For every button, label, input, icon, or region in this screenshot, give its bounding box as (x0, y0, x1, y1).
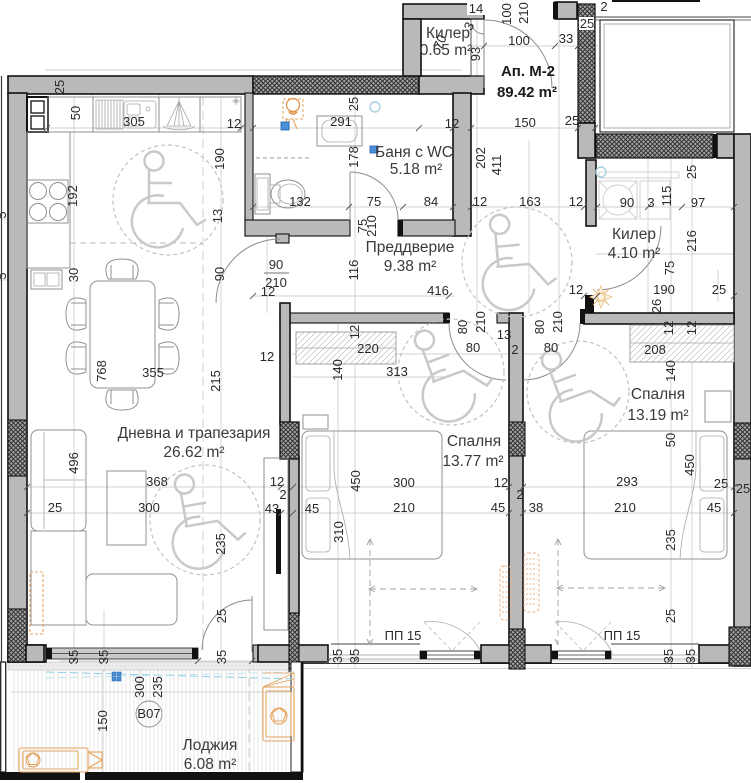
svg-text:12: 12 (261, 284, 275, 299)
svg-text:215: 215 (208, 370, 223, 392)
svg-text:313: 313 (386, 364, 408, 379)
svg-text:12: 12 (473, 194, 487, 209)
svg-text:ПП 15: ПП 15 (604, 628, 641, 643)
svg-text:Спалня: Спалня (447, 433, 501, 450)
svg-text:293: 293 (616, 474, 638, 489)
svg-text:150: 150 (514, 115, 536, 130)
svg-text:305: 305 (123, 114, 145, 129)
svg-text:368: 368 (146, 474, 168, 489)
svg-text:Ап. М-2: Ап. М-2 (501, 63, 555, 80)
svg-text:14: 14 (469, 1, 483, 16)
svg-text:Преддверие: Преддверие (366, 239, 455, 256)
svg-text:90: 90 (212, 267, 227, 281)
svg-text:210: 210 (364, 215, 379, 237)
svg-text:25: 25 (663, 609, 678, 623)
svg-text:50: 50 (68, 106, 83, 120)
svg-text:192: 192 (65, 185, 80, 207)
svg-text:3: 3 (647, 195, 654, 210)
svg-text:9.38 m²: 9.38 m² (384, 258, 437, 275)
svg-text:2: 2 (279, 487, 286, 502)
svg-text:45: 45 (707, 500, 721, 515)
svg-text:13: 13 (210, 209, 225, 223)
svg-text:411: 411 (489, 155, 504, 176)
svg-text:210: 210 (393, 500, 415, 515)
svg-text:12: 12 (661, 321, 676, 335)
svg-text:140: 140 (330, 359, 345, 381)
svg-text:210: 210 (516, 2, 531, 24)
svg-text:210: 210 (614, 500, 636, 515)
svg-text:220: 220 (357, 341, 379, 356)
svg-text:80: 80 (455, 320, 470, 334)
svg-text:140: 140 (663, 360, 678, 382)
svg-text:89.42 m²: 89.42 m² (497, 84, 557, 101)
svg-text:416: 416 (427, 283, 449, 298)
svg-text:26: 26 (649, 299, 664, 313)
svg-text:208: 208 (644, 342, 666, 357)
svg-text:210: 210 (550, 311, 565, 333)
svg-text:300: 300 (393, 475, 415, 490)
svg-text:35: 35 (214, 650, 229, 664)
svg-text:25: 25 (580, 16, 594, 31)
svg-text:116: 116 (346, 260, 361, 281)
svg-text:12: 12 (494, 475, 508, 490)
svg-text:768: 768 (94, 360, 109, 382)
svg-text:Дневна и трапезария: Дневна и трапезария (118, 425, 271, 442)
svg-text:45: 45 (491, 500, 505, 515)
svg-text:25: 25 (346, 97, 361, 111)
svg-text:30: 30 (66, 268, 81, 282)
svg-text:38: 38 (529, 500, 543, 515)
svg-text:4.10 m²: 4.10 m² (608, 245, 661, 262)
svg-text:291: 291 (330, 114, 352, 129)
svg-text:Спалня: Спалня (631, 386, 685, 403)
svg-text:97: 97 (691, 195, 705, 210)
svg-text:Баня с WC: Баня с WC (375, 144, 453, 161)
svg-text:12: 12 (569, 282, 583, 297)
svg-text:12: 12 (569, 194, 583, 209)
svg-text:2: 2 (511, 342, 518, 357)
svg-text:450: 450 (348, 470, 363, 492)
svg-text:100: 100 (499, 3, 514, 25)
svg-text:84: 84 (424, 194, 438, 209)
svg-text:12: 12 (684, 321, 699, 335)
svg-text:25: 25 (684, 165, 699, 179)
svg-text:300: 300 (132, 676, 147, 698)
svg-text:93: 93 (468, 47, 483, 61)
svg-text:190: 190 (212, 148, 227, 170)
svg-text:13.77 m²: 13.77 m² (442, 453, 503, 470)
svg-text:90: 90 (620, 195, 634, 210)
svg-text:25: 25 (52, 80, 67, 94)
svg-text:25: 25 (48, 500, 62, 515)
svg-text:Килер: Килер (612, 226, 656, 243)
svg-text:13: 13 (497, 327, 511, 342)
svg-text:235: 235 (213, 533, 228, 555)
svg-text:B07: B07 (137, 706, 160, 721)
svg-text:35: 35 (330, 649, 345, 663)
svg-text:12: 12 (260, 349, 274, 364)
svg-text:115: 115 (659, 186, 674, 207)
svg-text:5: 5 (0, 211, 9, 218)
svg-text:33: 33 (559, 31, 573, 46)
svg-text:13.19 m²: 13.19 m² (627, 407, 688, 424)
svg-text:50: 50 (663, 433, 678, 447)
svg-text:310: 310 (331, 521, 346, 543)
svg-text:450: 450 (682, 454, 697, 476)
svg-text:100: 100 (508, 33, 530, 48)
svg-text:80: 80 (466, 340, 480, 355)
svg-text:26.62 m²: 26.62 m² (163, 444, 224, 461)
svg-text:25: 25 (565, 113, 579, 128)
svg-text:75: 75 (662, 261, 677, 275)
svg-text:90: 90 (269, 257, 283, 272)
svg-text:2: 2 (516, 487, 523, 502)
svg-text:210: 210 (473, 311, 488, 333)
svg-text:12: 12 (227, 116, 241, 131)
svg-text:12: 12 (347, 325, 362, 339)
svg-text:132: 132 (289, 194, 311, 209)
svg-text:5: 5 (0, 272, 9, 279)
svg-text:355: 355 (142, 365, 164, 380)
svg-text:178: 178 (346, 146, 361, 168)
svg-text:6.08 m²: 6.08 m² (184, 756, 237, 773)
svg-text:150: 150 (95, 710, 110, 732)
svg-text:163: 163 (519, 194, 541, 209)
svg-text:Лоджия: Лоджия (183, 737, 238, 754)
svg-text:300: 300 (138, 500, 160, 515)
svg-text:235: 235 (150, 676, 165, 698)
svg-text:202: 202 (473, 147, 488, 169)
svg-text:ПП 15: ПП 15 (385, 628, 422, 643)
svg-text:496: 496 (66, 452, 81, 474)
svg-text:45: 45 (305, 501, 319, 516)
svg-text:216: 216 (684, 230, 699, 252)
svg-text:25: 25 (712, 282, 726, 297)
svg-text:25: 25 (714, 476, 728, 491)
svg-text:190: 190 (653, 282, 675, 297)
svg-text:235: 235 (663, 529, 678, 551)
svg-text:25: 25 (214, 609, 229, 623)
svg-text:43: 43 (265, 501, 279, 516)
svg-text:25: 25 (736, 481, 750, 496)
svg-text:75: 75 (367, 194, 381, 209)
svg-text:2: 2 (600, 0, 607, 14)
svg-text:5.18 m²: 5.18 m² (390, 161, 443, 178)
svg-text:80: 80 (544, 340, 558, 355)
svg-text:80: 80 (532, 320, 547, 334)
